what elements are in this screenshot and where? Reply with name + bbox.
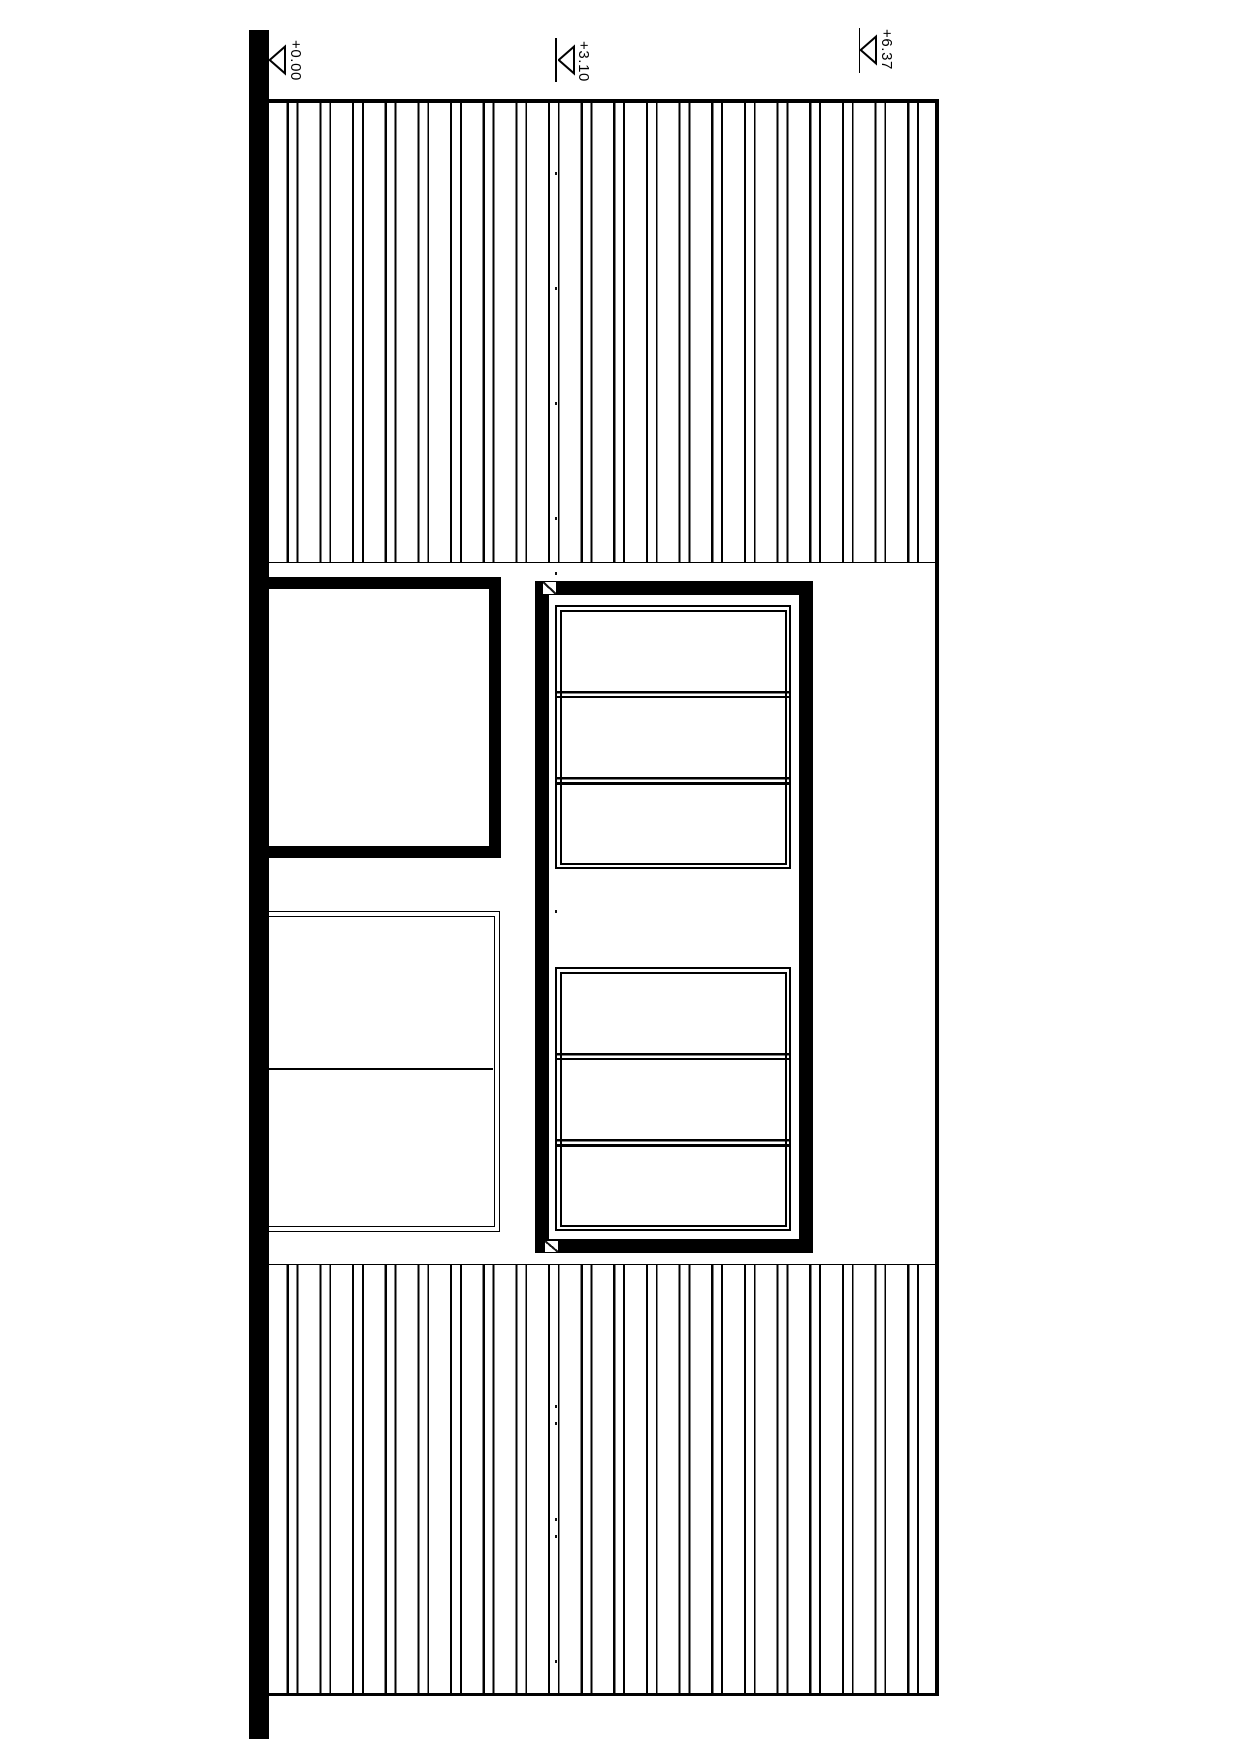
window-pane-outline (257, 916, 495, 1227)
glazing-panel-lower (555, 967, 791, 1231)
glazing-panel-upper (555, 605, 791, 869)
datum-dot (555, 1405, 557, 1408)
elevation-sheet: +0.00 +3.10 +6.37 (0, 0, 1241, 1755)
level-marker-triangle-icon (860, 34, 877, 66)
datum-dot (555, 1518, 557, 1521)
frame-corner-miter-icon (545, 1241, 558, 1253)
level-marker-triangle-icon (558, 44, 575, 76)
glazing-divider-1 (556, 691, 790, 699)
glazing-divider-2 (556, 777, 790, 785)
glazing-pane-outline (560, 610, 787, 865)
datum-dot (555, 172, 557, 175)
level-marker-triangle-icon (269, 44, 286, 76)
glazing-divider-1 (556, 1053, 790, 1061)
cladding-band-lower (268, 1264, 935, 1693)
frame-corner-miter-icon (543, 582, 556, 594)
datum-dot (555, 572, 557, 575)
datum-dot (555, 402, 557, 405)
glazing-divider-2 (556, 1139, 790, 1147)
glazing-pane-outline (560, 972, 787, 1227)
level-marker-label: +3.10 (576, 41, 591, 82)
ground-line (249, 30, 269, 1739)
window-upper-left-frame (252, 577, 501, 858)
level-marker-label: +0.00 (288, 40, 303, 81)
datum-dot (555, 287, 557, 290)
datum-dot (555, 517, 557, 520)
level-marker-label: +6.37 (879, 29, 894, 70)
datum-dot (555, 1535, 557, 1538)
cladding-band-upper (268, 103, 935, 563)
door-right-frame (535, 581, 813, 1253)
window-glazing-divider (253, 1068, 493, 1070)
window-lower-left-frame (252, 911, 500, 1232)
datum-dot (555, 1422, 557, 1425)
datum-dot (555, 1660, 557, 1663)
